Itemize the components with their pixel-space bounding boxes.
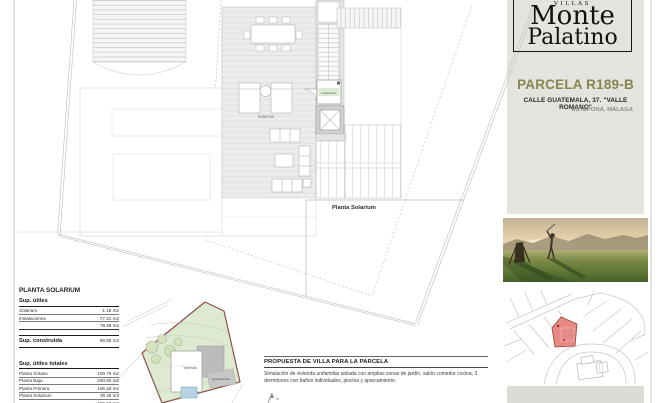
row-label: Planta Primera [19,386,49,391]
utiles-subtotal: 78.49 m2 [19,322,119,329]
table-row: Solarium 1.18 m2 [19,308,119,315]
construida-heading: Sup. construida [19,338,62,344]
site-plan: Vivienda Aparcamiento N [96,299,279,403]
north-arrow-icon: N [268,393,279,403]
utiles-heading: Sup. útiles [19,298,119,307]
areas-title: PLANTA SOLARIUM [19,287,119,294]
table-row: Planta Baja 200.60 m2 [19,378,119,385]
pool [181,387,197,398]
proposal-body: Simulación de vivienda unifamiliar aisla… [264,371,488,385]
construida-value: 88.85 m2 [100,338,119,343]
areas-table: PLANTA SOLARIUM Sup. útiles Solarium 1.1… [19,287,119,403]
brand-logo: VILLAS Monte Palatino [513,0,632,52]
table-row: Planta Sótano 109.76 m2 [19,370,119,377]
proposal-block: PROPUESTA DE VILLA PARA LA PARCELA Simul… [264,356,488,385]
location-map [504,290,648,385]
golf-photo [503,218,648,282]
row-value: 1.18 m2 [102,308,119,313]
parcel-city: ESTEPONA. MÁLAGA [507,107,633,113]
solarium-label: Solarium [258,114,275,119]
staircase [318,24,339,80]
table-row: Planta Primera 106.34 m2 [19,385,119,392]
brand-monte: Monte [530,6,615,27]
floor-title-label: Planta Solarium [332,205,376,211]
construida-row: Sup. construida 88.85 m2 [19,335,119,348]
parcel-title: PARCELA R189-B [507,77,644,92]
elevator [316,106,344,134]
utiles-totales-heading: Sup. útiles totales [19,361,119,370]
row-label: Planta Solarium [19,393,51,398]
row-label: Planta Sótano [19,371,48,376]
row-value: 109.76 m2 [97,371,119,376]
vivienda-label: Vivienda [184,366,197,370]
row-value: 200.60 m2 [97,378,119,383]
lower-level-outline [18,0,233,236]
plan-sheet: Solarium Instalaciones [0,0,660,403]
row-label: Solarium [19,308,37,313]
map-building [576,354,609,380]
row-label: Planta Baja [19,378,43,383]
highlighted-parcel [552,317,577,347]
aparcamiento-label: Aparcamiento [212,377,230,381]
subtotal-value: 78.49 m2 [100,323,119,328]
row-value: 77.31 m2 [100,316,119,321]
instalaciones-label: Instalaciones [321,91,337,95]
brand-palatino: Palatino [527,27,617,49]
proposal-title: PROPUESTA DE VILLA PARA LA PARCELA [264,356,488,368]
table-row: Instalaciones 77.31 m2 [19,315,119,322]
row-value: 106.34 m2 [97,386,119,391]
floor-plan: Solarium Instalaciones [222,0,464,297]
row-label: Instalaciones [19,316,46,321]
vivienda-footprint [171,351,202,392]
row-value: 78.49 m2 [100,393,119,398]
table-row: Planta Solarium 78.49 m2 [19,393,119,400]
north-label: N [276,396,279,401]
